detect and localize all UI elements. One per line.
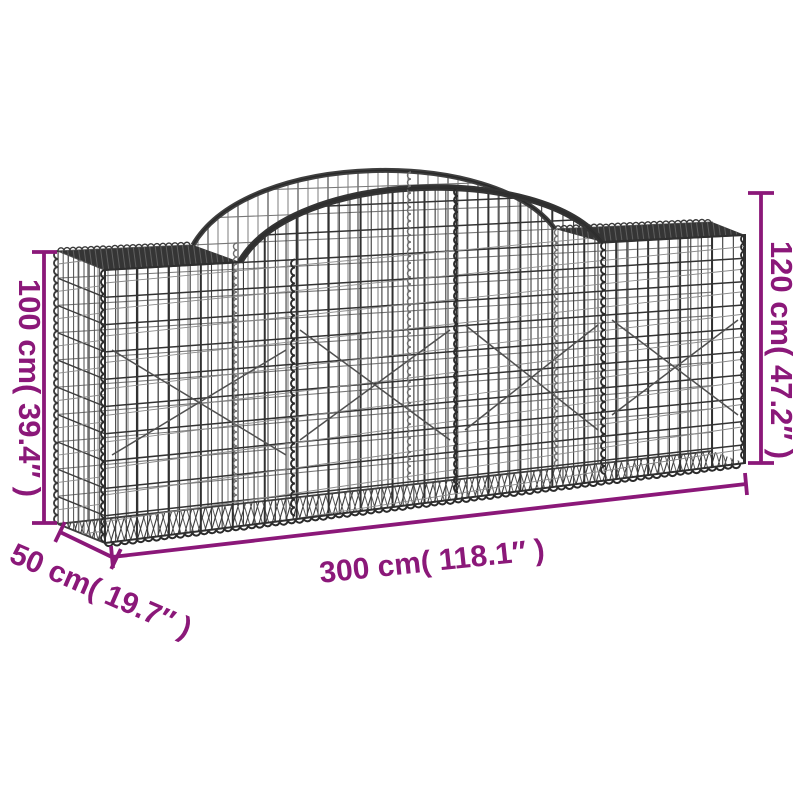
dimension-height-right: 120 cm( 47.2″ ) <box>748 193 799 463</box>
dimension-height-left: 100 cm( 39.4″ ) <box>12 252 57 523</box>
dimension-label-length: 300 cm( 118.1″ ) <box>318 533 546 589</box>
basket-arch-back <box>193 170 555 245</box>
dimension-label-height-right: 120 cm( 47.2″ ) <box>764 241 799 459</box>
dimension-length: 300 cm( 118.1″ ) <box>111 473 747 590</box>
dimension-label-height-left: 100 cm( 39.4″ ) <box>12 279 47 497</box>
basket-top-rim-texture <box>50 200 755 290</box>
basket-arch-back-wire <box>193 170 555 245</box>
diagram-canvas: 100 cm( 39.4″ ) 120 cm( 47.2″ ) 300 cm( … <box>0 0 800 800</box>
gabion-basket-dimension-diagram: 100 cm( 39.4″ ) 120 cm( 47.2″ ) 300 cm( … <box>0 0 800 800</box>
